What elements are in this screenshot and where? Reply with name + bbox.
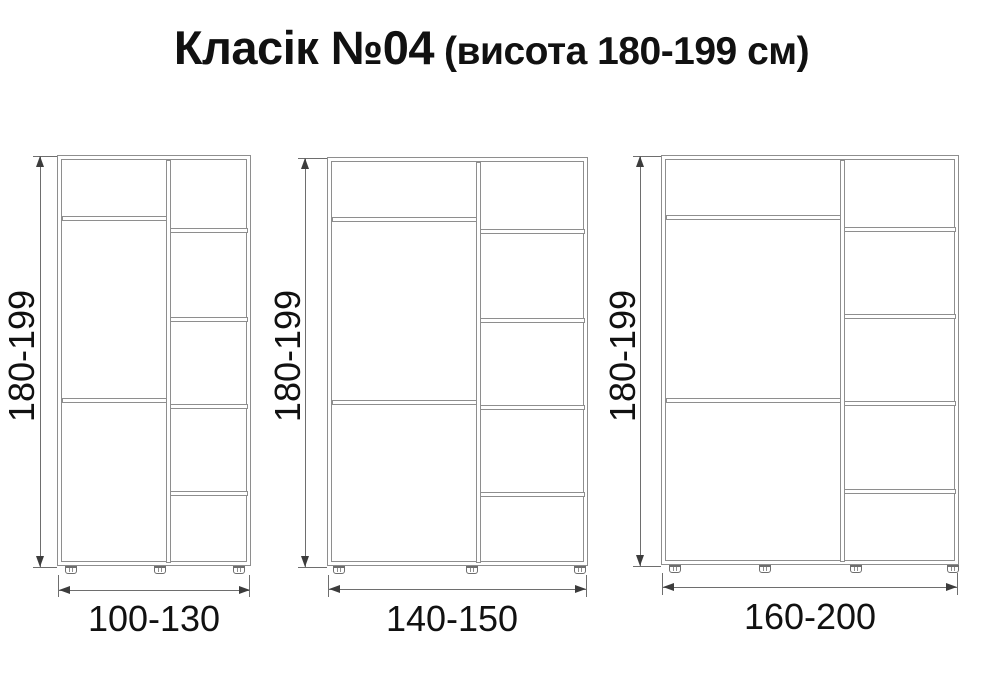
right-shelf-panel-2 — [480, 318, 585, 323]
cabinet-body — [661, 155, 959, 565]
adjustable-foot — [759, 565, 771, 573]
right-shelf-panel-1 — [170, 228, 248, 233]
height-dimension-label: 180-199 — [267, 290, 309, 422]
width-dim-arrow-right-icon — [946, 583, 957, 591]
right-shelf-panel-3 — [844, 401, 956, 406]
vertical-divider-panel — [476, 162, 481, 563]
height-dimension-label: 180-199 — [602, 290, 644, 422]
left-top-shelf-panel — [666, 215, 841, 220]
adjustable-foot — [669, 565, 681, 573]
left-top-shelf-panel — [62, 216, 167, 221]
height-dimension-label: 180-199 — [1, 290, 43, 422]
diagram-canvas: Класік №04(висота 180-199 см) 180-199 — [0, 0, 983, 700]
left-middle-shelf-panel — [62, 398, 167, 403]
width-dim-arrow-left-icon — [59, 586, 70, 594]
right-shelf-panel-2 — [844, 314, 956, 319]
left-top-shelf-panel — [332, 217, 477, 222]
title-main: Класік №04 — [174, 21, 434, 74]
adjustable-foot — [574, 566, 586, 574]
adjustable-foot — [233, 566, 245, 574]
width-dim-arrow-left-icon — [663, 583, 674, 591]
width-extension-right — [957, 573, 958, 595]
adjustable-foot — [466, 566, 478, 574]
width-dim-arrow-left-icon — [329, 585, 340, 593]
cabinet-body — [57, 155, 251, 566]
adjustable-foot — [333, 566, 345, 574]
height-dim-arrow-down-icon — [301, 556, 309, 567]
right-shelf-panel-3 — [480, 405, 585, 410]
adjustable-foot — [154, 566, 166, 574]
width-dimension-label: 100-130 — [88, 598, 220, 640]
width-dimension-line — [329, 589, 586, 590]
right-shelf-panel-2 — [170, 317, 248, 322]
width-dimension-line — [59, 590, 250, 591]
height-extension-bottom — [33, 567, 57, 568]
height-dim-arrow-up-icon — [36, 156, 44, 167]
page-title: Класік №04(висота 180-199 см) — [0, 20, 983, 75]
width-dimension-line — [663, 587, 957, 588]
right-shelf-panel-1 — [844, 227, 956, 232]
right-shelf-panel-4 — [844, 489, 956, 494]
height-extension-bottom — [298, 567, 327, 568]
right-shelf-panel-3 — [170, 404, 248, 409]
right-shelf-panel-1 — [480, 229, 585, 234]
cabinet-body — [327, 157, 588, 566]
height-dim-arrow-up-icon — [636, 156, 644, 167]
right-shelf-panel-4 — [480, 492, 585, 497]
left-middle-shelf-panel — [332, 400, 477, 405]
right-shelf-panel-4 — [170, 491, 248, 496]
height-dim-arrow-up-icon — [301, 158, 309, 169]
height-dim-arrow-down-icon — [636, 555, 644, 566]
width-dimension-label: 160-200 — [744, 596, 876, 638]
adjustable-foot — [850, 565, 862, 573]
width-extension-right — [586, 575, 587, 597]
width-dim-arrow-right-icon — [239, 586, 250, 594]
width-dim-arrow-right-icon — [575, 585, 586, 593]
title-suffix: (висота 180-199 см) — [444, 30, 809, 73]
vertical-divider-panel — [840, 160, 845, 562]
height-dim-arrow-down-icon — [36, 556, 44, 567]
height-extension-bottom — [633, 566, 661, 567]
adjustable-foot — [65, 566, 77, 574]
adjustable-foot — [947, 565, 959, 573]
width-dimension-label: 140-150 — [386, 598, 518, 640]
left-middle-shelf-panel — [666, 398, 841, 403]
